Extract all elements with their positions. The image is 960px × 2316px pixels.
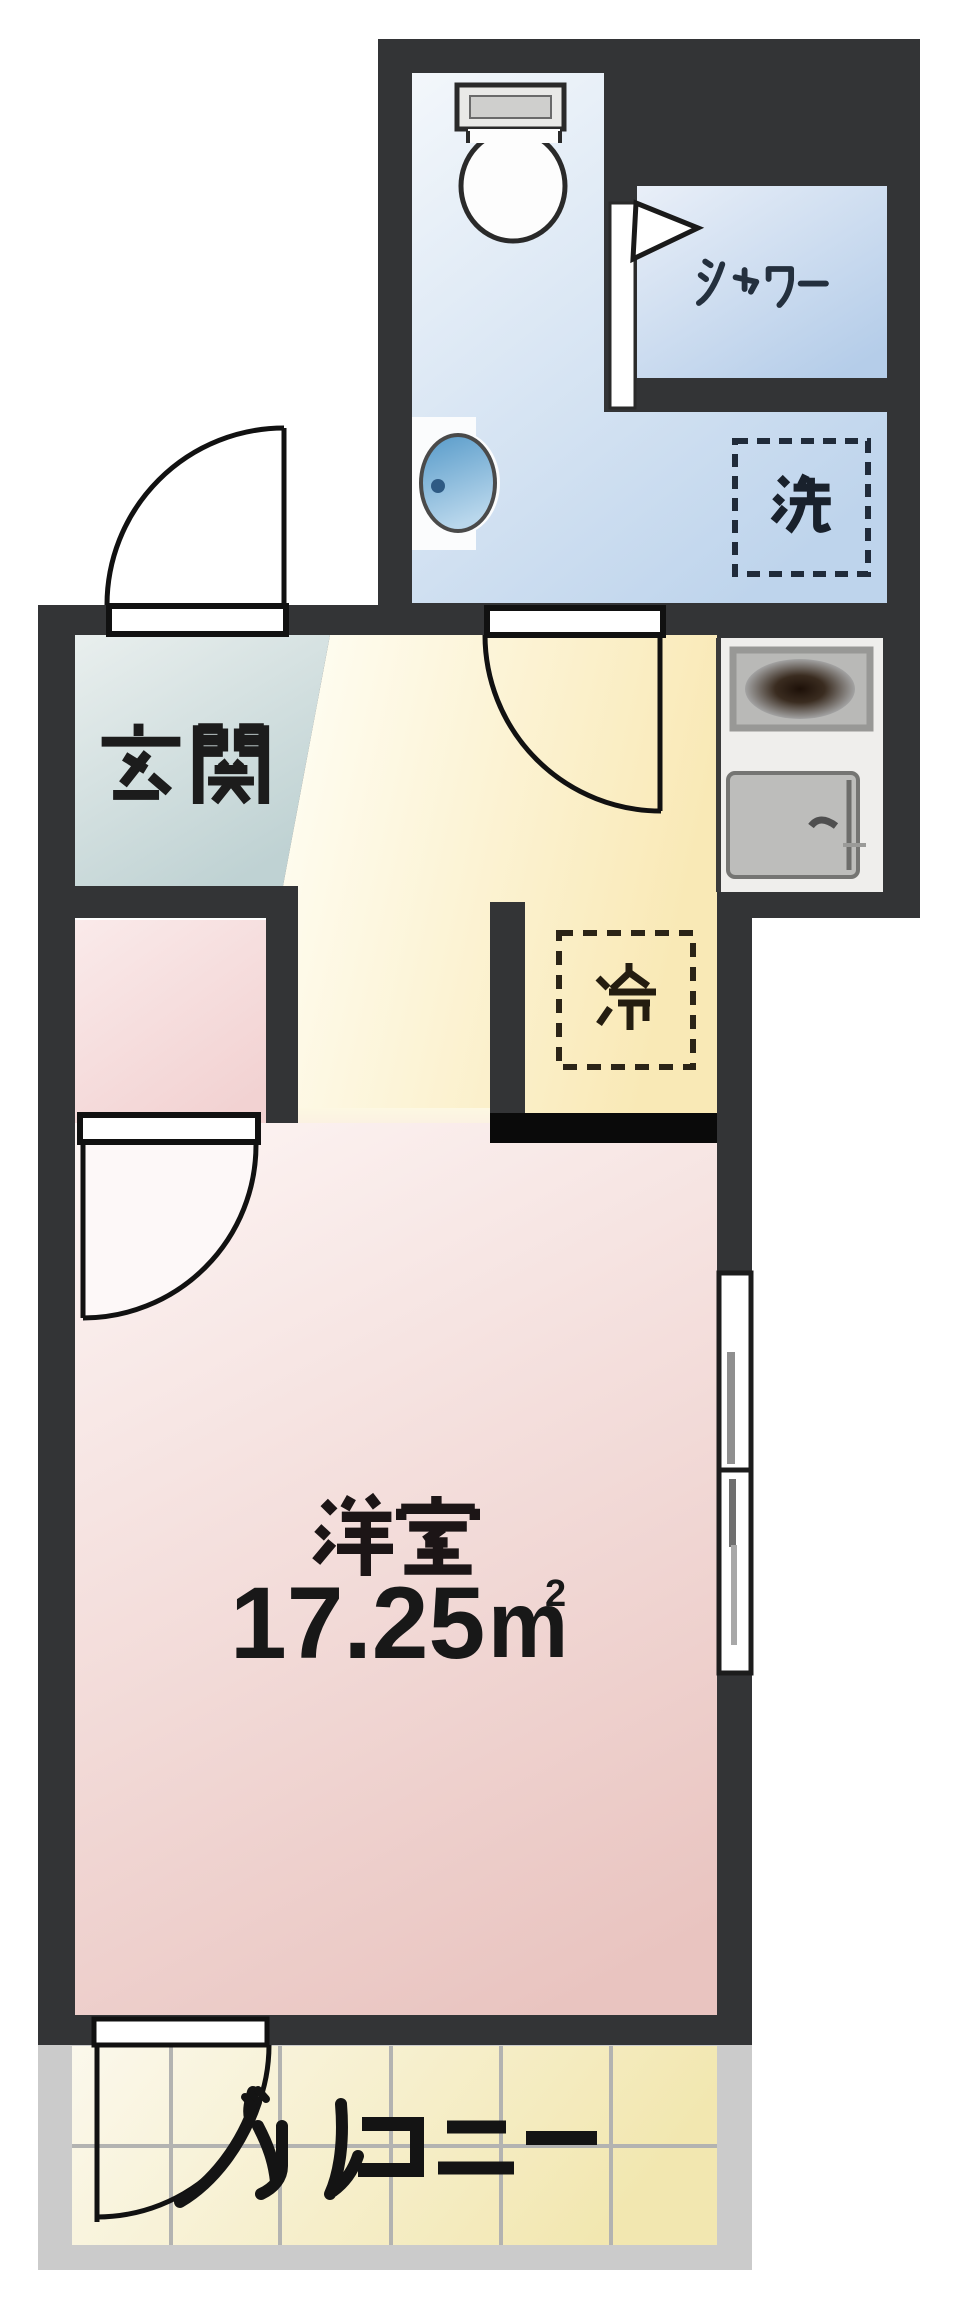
svg-text:17.25: 17.25 xyxy=(230,1566,485,1680)
svg-text:2: 2 xyxy=(545,1573,566,1615)
